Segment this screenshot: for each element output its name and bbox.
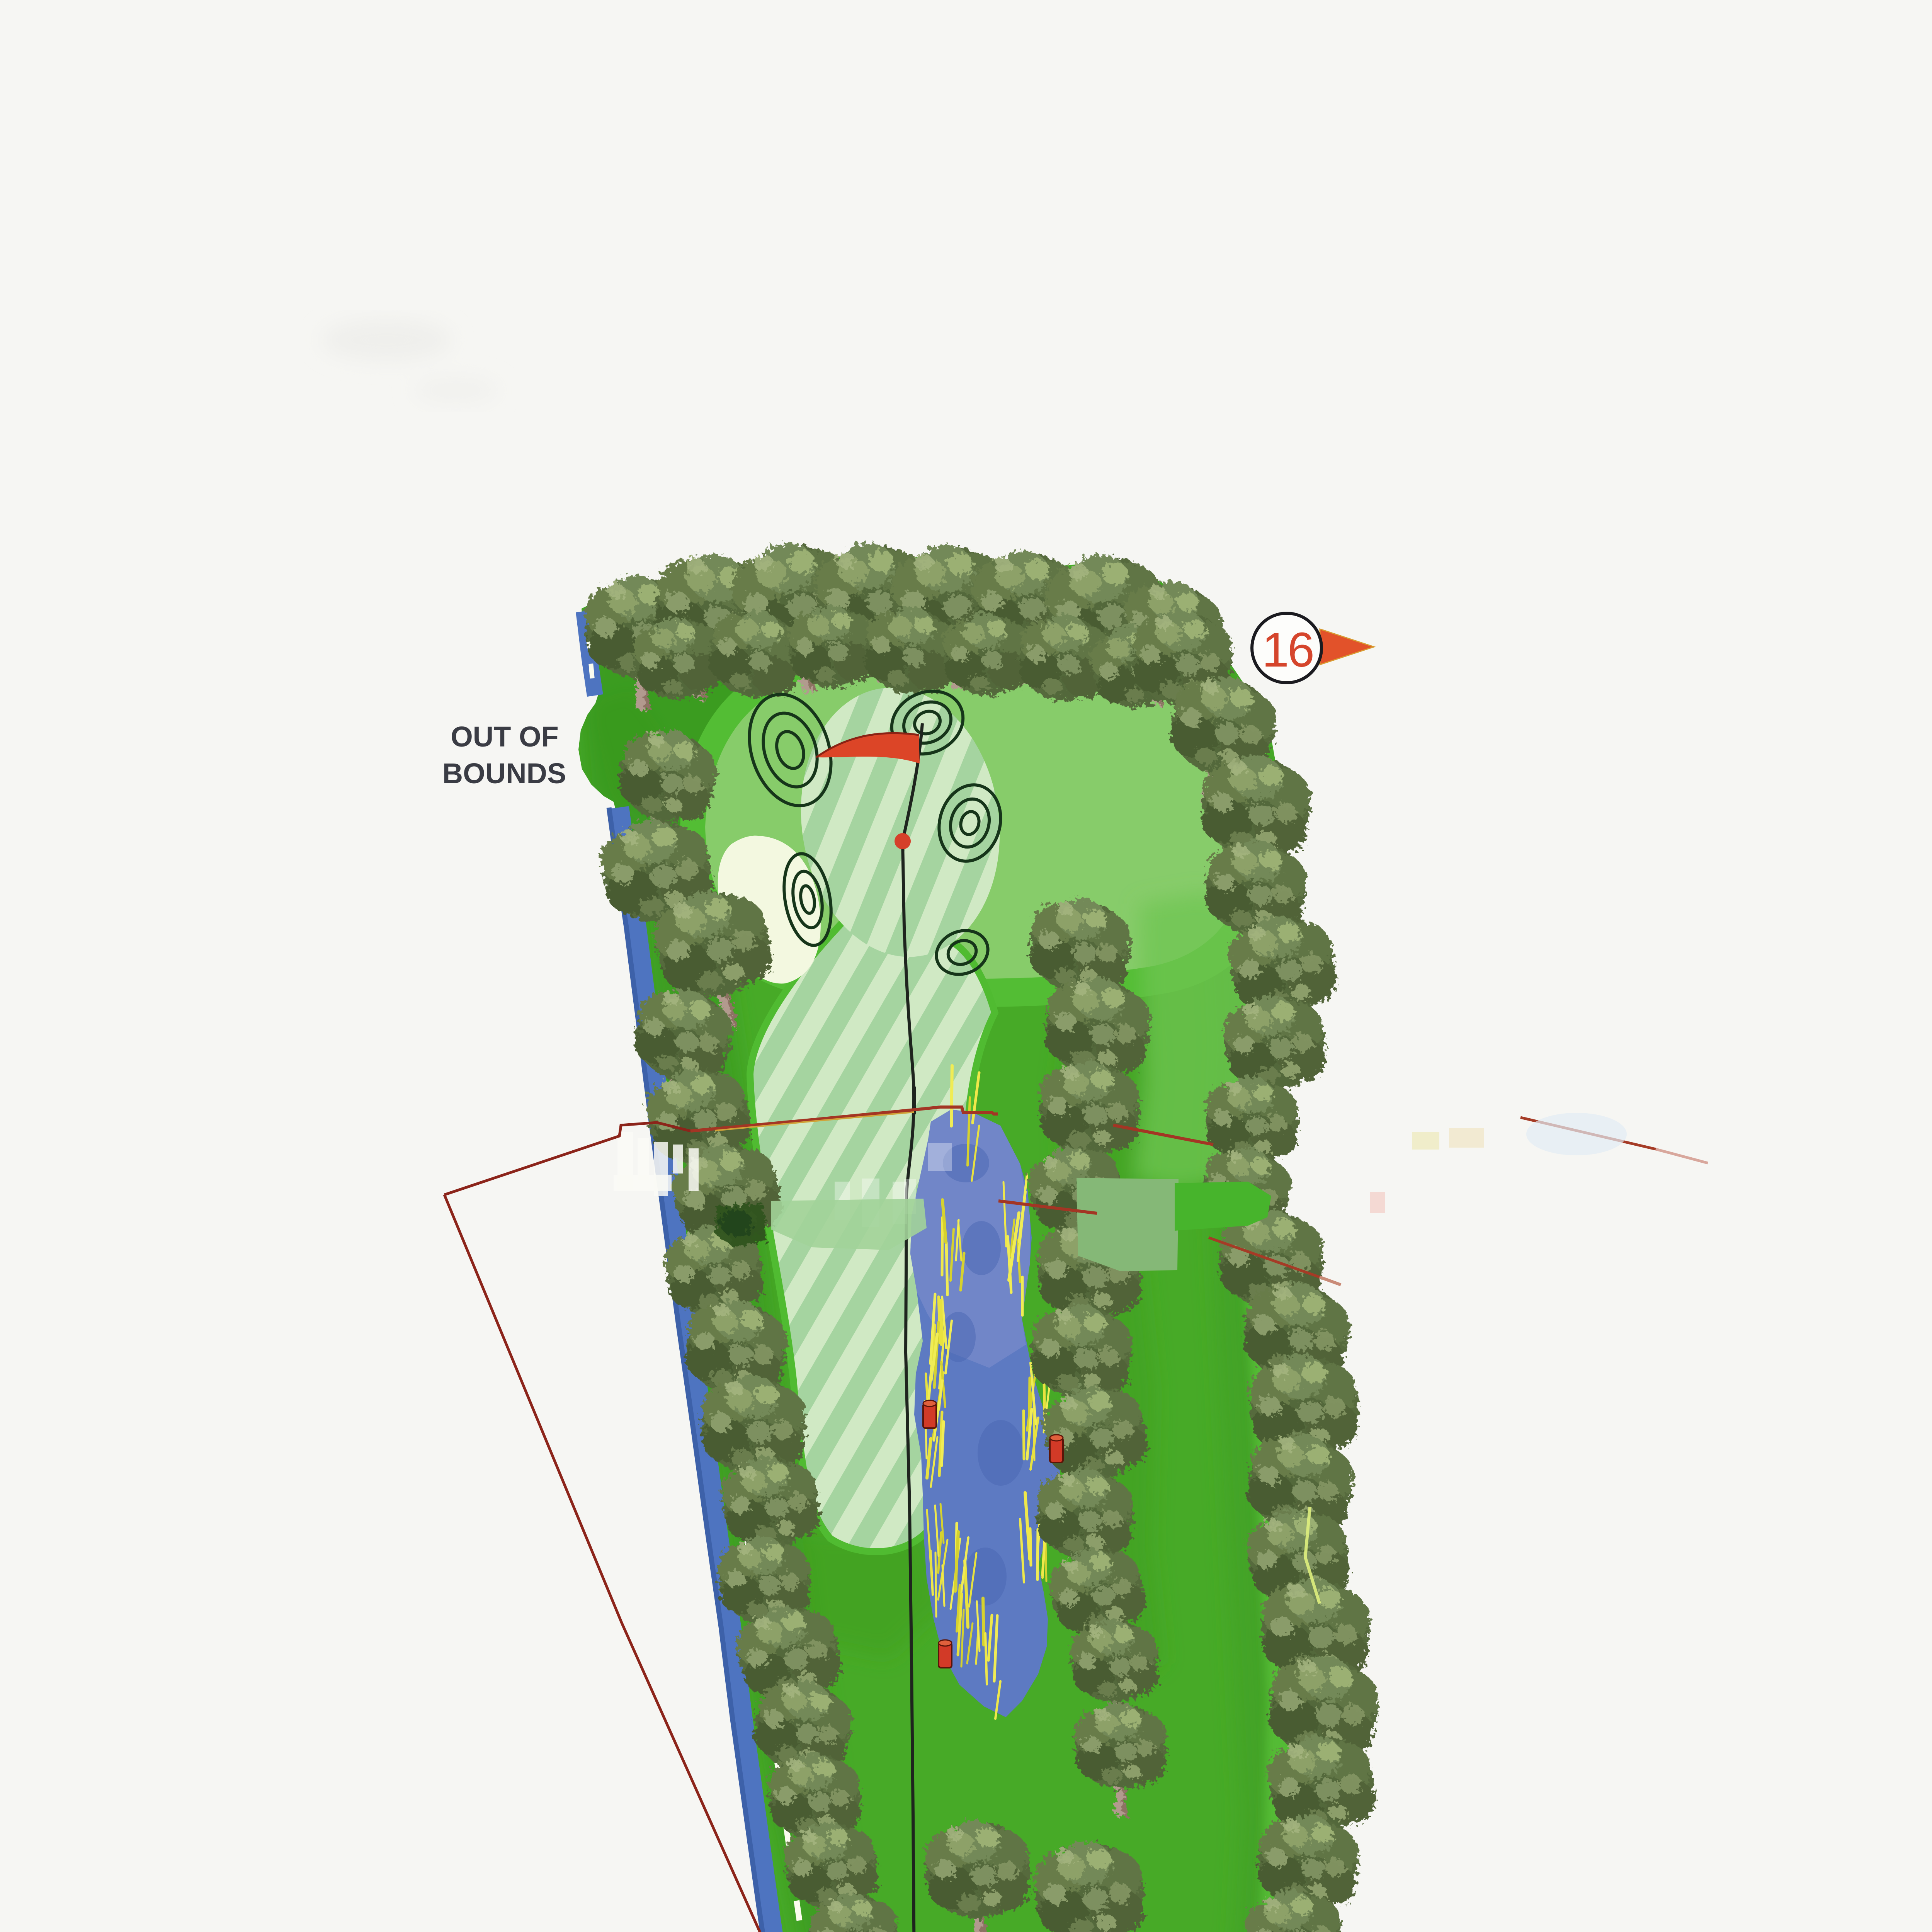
svg-text:OUT OF: OUT OF (451, 721, 559, 753)
svg-text:16: 16 (1262, 622, 1313, 677)
svg-text:BOUNDS: BOUNDS (442, 757, 566, 789)
